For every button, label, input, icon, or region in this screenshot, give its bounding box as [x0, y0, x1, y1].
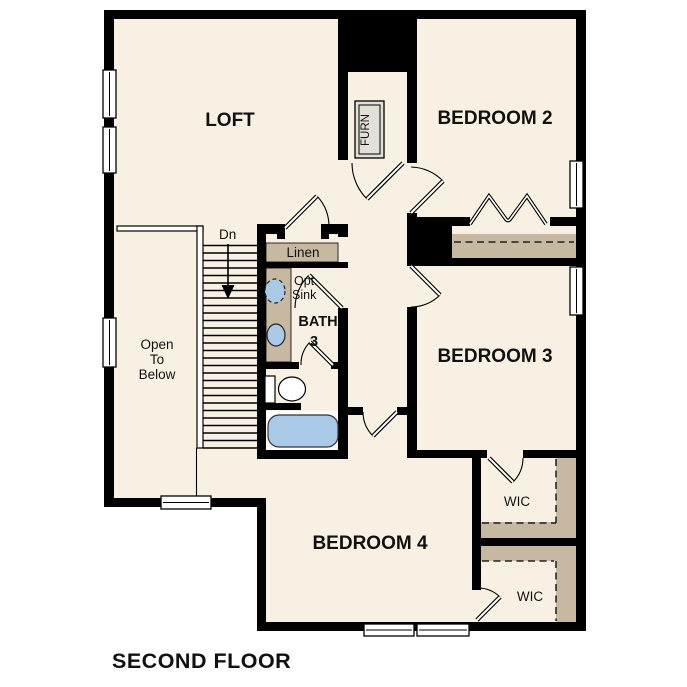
optional-sink — [265, 279, 285, 303]
label-optional-sink-1: Opt. — [294, 274, 318, 288]
window — [103, 127, 116, 173]
room-label-bedroom2: BEDROOM 2 — [437, 108, 552, 129]
floor-plan: LOFT BEDROOM 2 BEDROOM 3 BEDROOM 4 BATH … — [0, 0, 687, 687]
page-title: SECOND FLOOR — [112, 649, 291, 673]
room-label-wic-top: WIC — [504, 494, 530, 509]
label-linen: Linen — [286, 245, 319, 260]
room-label-bedroom3: BEDROOM 3 — [437, 346, 552, 367]
label-open-to-below-2: To — [150, 352, 164, 367]
room-label-bedroom4: BEDROOM 4 — [312, 533, 428, 554]
label-stairs-down: Dn — [219, 227, 236, 242]
room-label-bath: BATH — [298, 314, 337, 330]
window — [417, 624, 469, 636]
wic-bottom-shelf-top — [481, 546, 576, 561]
label-furnace: FURN — [360, 114, 372, 146]
window — [570, 161, 583, 208]
bedroom2-closet-shelf — [452, 234, 576, 258]
wic-top-shelf-bottom — [481, 522, 576, 538]
window — [103, 318, 116, 367]
wic-bottom-shelf-right — [556, 560, 576, 622]
label-optional-sink-2: Sink — [292, 288, 317, 302]
room-label-loft: LOFT — [205, 110, 255, 131]
sink — [267, 324, 285, 346]
label-open-to-below-1: Open — [140, 337, 173, 352]
window — [103, 70, 116, 118]
label-open-to-below-3: Below — [139, 367, 176, 382]
window — [570, 267, 583, 315]
window — [364, 624, 414, 636]
window — [161, 496, 211, 509]
bathtub — [268, 415, 338, 447]
floor-plan-drawing: LOFT BEDROOM 2 BEDROOM 3 BEDROOM 4 BATH … — [0, 0, 687, 687]
room-label-bath-number: 3 — [310, 334, 318, 350]
wic-top-shelf-right — [556, 458, 576, 523]
chase-shaft — [338, 10, 417, 72]
room-label-wic-bottom: WIC — [517, 589, 543, 604]
toilet-bowl — [279, 377, 306, 401]
toilet-tank — [265, 376, 275, 403]
